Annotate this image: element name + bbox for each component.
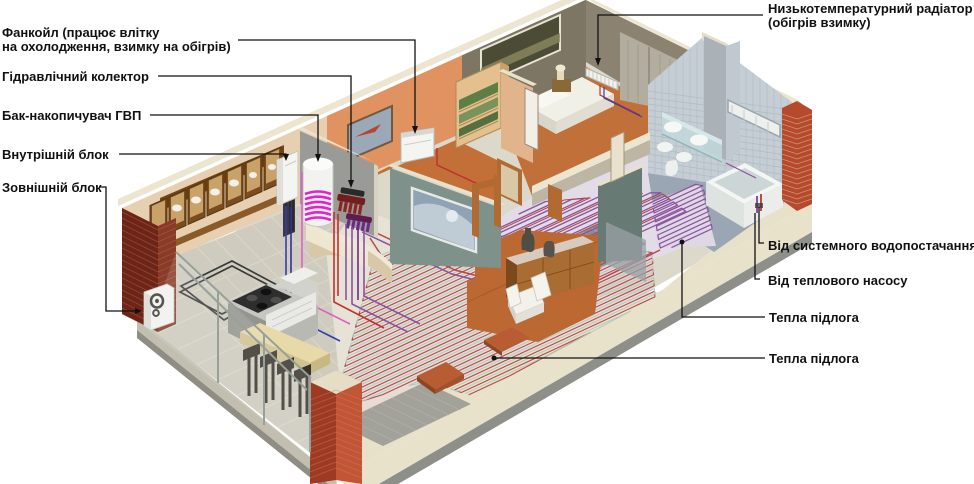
svg-text:Низькотемпературний радіатор: Низькотемпературний радіатор (768, 1, 973, 16)
svg-text:Фанкойл (працює влітку: Фанкойл (працює влітку (2, 25, 160, 40)
svg-text:Бак-накопичувач ГВП: Бак-накопичувач ГВП (2, 108, 141, 123)
svg-text:Внутрішній блок: Внутрішній блок (2, 147, 109, 162)
svg-text:Тепла підлога: Тепла підлога (769, 351, 860, 366)
svg-text:на охолодження, взимку на обіг: на охолодження, взимку на обігрів) (2, 39, 231, 54)
svg-text:Від теплового насосу: Від теплового насосу (768, 273, 908, 288)
svg-text:Тепла підлога: Тепла підлога (769, 310, 860, 325)
svg-text:Від системного водопостачання: Від системного водопостачання (768, 238, 974, 253)
svg-text:(обігрів взимку): (обігрів взимку) (768, 15, 871, 30)
svg-text:Гідравлічний колектор: Гідравлічний колектор (2, 69, 149, 84)
svg-text:Зовнішній блок: Зовнішній блок (2, 180, 102, 195)
